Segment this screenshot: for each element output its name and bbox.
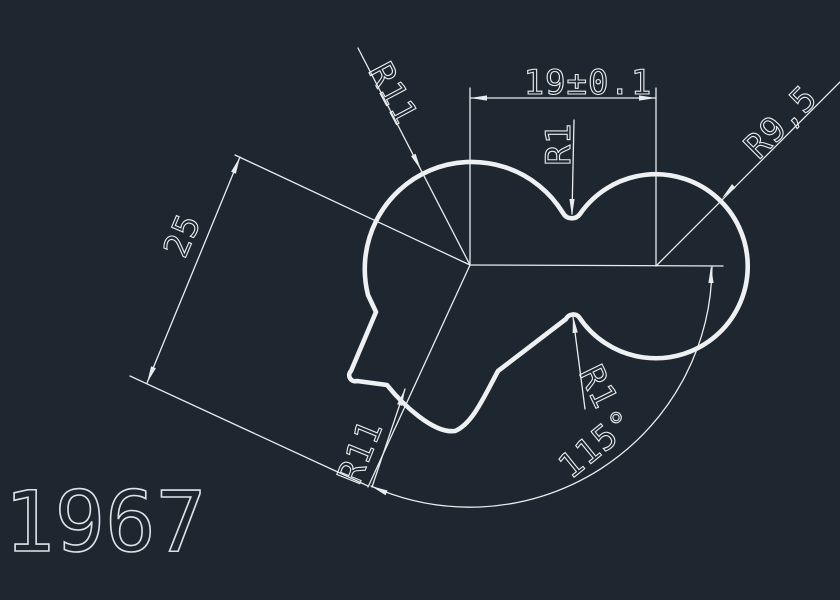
radius-r11-top: R11 [358,48,470,265]
radius-r95: R9,5 [656,78,840,266]
arrowhead [569,199,574,216]
cad-drawing-canvas: 19±0.1 R11 R1 R9,5 25 [0,0,840,600]
dim-height-25: 25 [130,155,470,486]
extension-line [235,155,470,265]
angle-arc [371,267,712,507]
radius-r1-top-label: R1 [539,123,579,166]
radius-r1-bottom: R1 [570,316,625,415]
dim-angle-115: 115° [368,265,723,507]
radius-r95-label: R9,5 [737,78,826,167]
arrowhead [371,486,388,495]
radius-r1-top: R1 [539,120,579,216]
arrowhead [147,366,156,383]
arrowhead [411,154,421,170]
dim-width-label: 19±0.1 [524,63,653,103]
arrowhead [722,184,736,198]
arrowhead [231,157,240,174]
angle-ray-horizontal [470,265,723,266]
cad-drawing: 19±0.1 R11 R1 R9,5 25 [0,0,840,600]
arrowhead [573,316,578,333]
arrowhead [470,95,487,100]
dim-height-label: 25 [156,208,210,263]
dimension-line [147,157,240,383]
radius-r11-top-label: R11 [360,56,426,132]
dim-angle-label: 115° [551,402,643,487]
arrowhead [708,266,713,283]
part-number: 1967 [4,473,206,571]
radius-r11-bottom: R11 [330,389,405,489]
part-profile-outline [349,162,748,431]
radius-r11-bottom-label: R11 [330,415,391,490]
